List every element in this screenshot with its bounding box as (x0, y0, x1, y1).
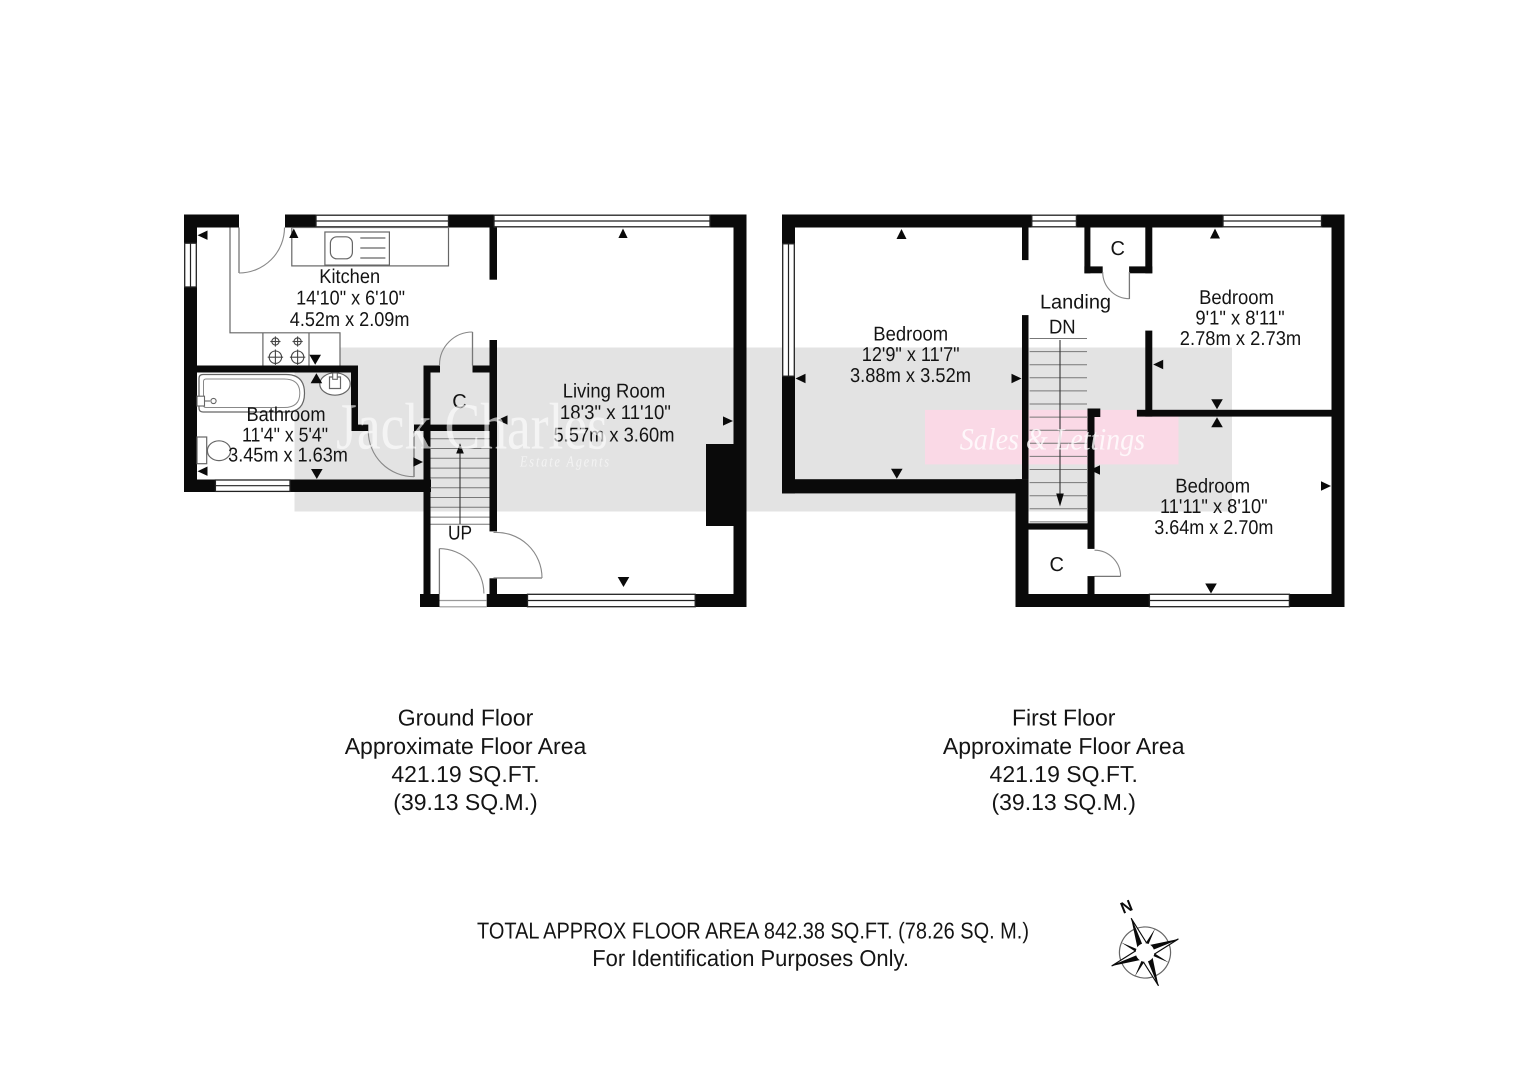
svg-text:11'11" x 8'10": 11'11" x 8'10" (1160, 496, 1268, 518)
svg-text:Estate Agents: Estate Agents (519, 454, 611, 471)
svg-text:12'9" x 11'7": 12'9" x 11'7" (862, 344, 960, 366)
svg-text:TOTAL APPROX FLOOR AREA 842.38: TOTAL APPROX FLOOR AREA 842.38 SQ.FT. (7… (477, 917, 1029, 943)
svg-text:UP: UP (448, 522, 472, 544)
svg-text:(39.13 SQ.M.): (39.13 SQ.M.) (393, 789, 537, 815)
svg-text:Landing: Landing (1040, 292, 1111, 314)
svg-text:14'10" x 6'10": 14'10" x 6'10" (296, 288, 405, 310)
svg-text:Bedroom: Bedroom (873, 324, 948, 346)
svg-text:(39.13 SQ.M.): (39.13 SQ.M.) (991, 789, 1135, 815)
svg-text:421.19 SQ.FT.: 421.19 SQ.FT. (990, 761, 1138, 787)
svg-text:Approximate Floor Area: Approximate Floor Area (345, 733, 587, 759)
svg-text:2.78m x 2.73m: 2.78m x 2.73m (1180, 328, 1301, 350)
svg-text:3.88m x 3.52m: 3.88m x 3.52m (850, 365, 971, 387)
svg-text:First Floor: First Floor (1012, 705, 1116, 731)
svg-text:Bedroom: Bedroom (1175, 476, 1250, 498)
svg-text:Sales & Lettings: Sales & Lettings (960, 422, 1145, 457)
svg-text:11'4" x 5'4": 11'4" x 5'4" (242, 425, 328, 447)
svg-text:3.45m x 1.63m: 3.45m x 1.63m (228, 445, 348, 467)
svg-text:C: C (1049, 554, 1063, 576)
svg-text:Bedroom: Bedroom (1199, 287, 1274, 309)
svg-text:3.64m x 2.70m: 3.64m x 2.70m (1154, 517, 1273, 539)
svg-text:Bathroom: Bathroom (247, 404, 326, 426)
svg-text:C: C (1110, 238, 1124, 260)
svg-text:Kitchen: Kitchen (319, 266, 380, 288)
svg-text:Ground Floor: Ground Floor (398, 705, 534, 731)
svg-text:DN: DN (1049, 316, 1076, 338)
svg-text:4.52m x 2.09m: 4.52m x 2.09m (290, 309, 410, 331)
svg-text:Approximate Floor Area: Approximate Floor Area (943, 733, 1185, 759)
svg-text:421.19 SQ.FT.: 421.19 SQ.FT. (391, 761, 539, 787)
svg-text:For Identification Purposes On: For Identification Purposes Only. (592, 945, 909, 971)
svg-text:9'1" x 8'11": 9'1" x 8'11" (1195, 308, 1284, 330)
